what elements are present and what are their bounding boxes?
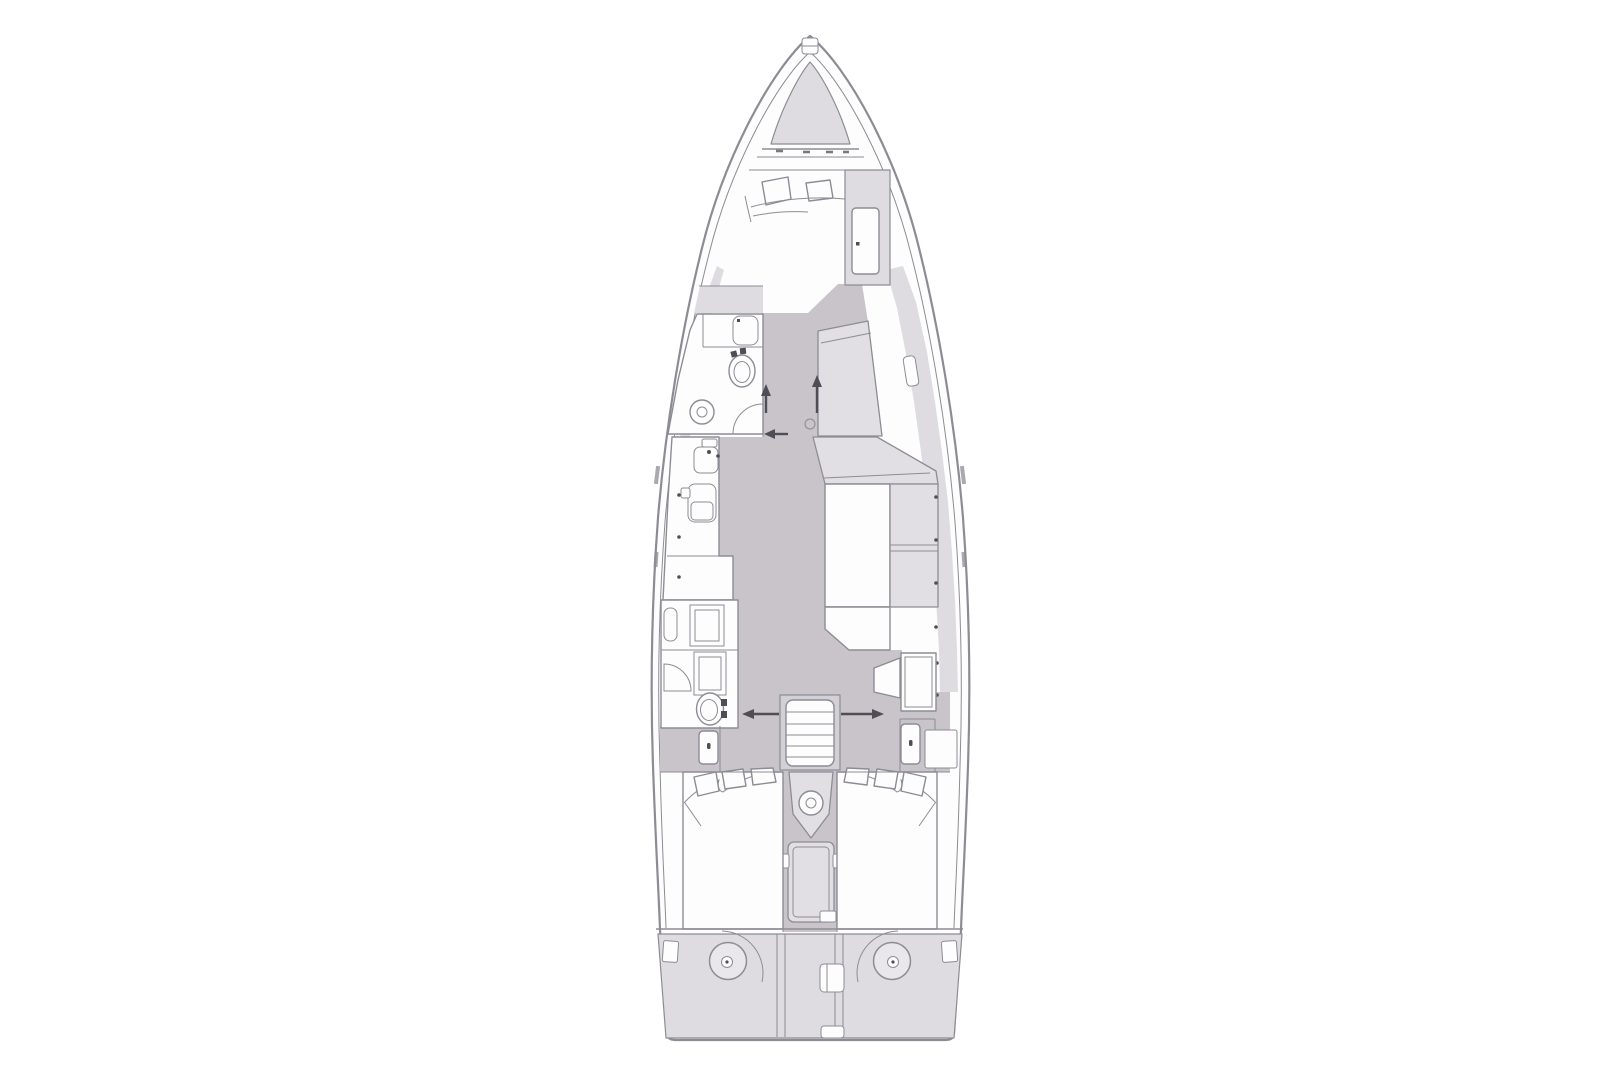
forward-head [668,314,763,434]
starboard-entry-step [925,730,957,768]
toilet-hinge [721,699,727,706]
coachroof-window [852,208,879,274]
starboard-hatch-latch [909,740,913,746]
yacht-floorplan-canvas: Sailing yacht interior layout plan — ove… [0,0,1620,1080]
galley-sink-faucet-dot [707,450,711,454]
transom-corner-notch-port [662,941,678,963]
port-aft-pillow [751,768,776,785]
sofa-seat [825,484,890,607]
forward-bulkhead-strip [694,286,763,313]
engine-access-circle [799,791,823,815]
companionway [780,695,840,770]
galley-sink-tab [702,439,717,447]
starboard-aft-pillow [901,772,926,796]
toilet-hinge [721,711,727,718]
starboard-aft-cabin [837,768,937,929]
stairs-ladder [786,700,834,766]
swim-ladder-recess [821,1026,844,1038]
starboard-aft-pillow [844,768,869,785]
mid-head-cabinet-inner [699,657,721,690]
mid-head [661,600,738,728]
transom-center-fitting [820,964,844,992]
toilet-hinge [740,348,747,355]
transom-corner-notch-stbd [941,940,957,962]
steering-hub-dot-port [725,960,728,963]
port-toe-rail-fitting [654,466,660,484]
vanity-faucet-dot [737,319,740,322]
port-aft-pillow [694,772,719,796]
nav-cabinet [901,653,936,711]
engine-box [788,842,834,922]
floor-plan-svg: Sailing yacht interior layout plan — ove… [0,0,1620,1080]
transom-platform [658,934,962,1038]
port-aft-cabin [683,768,783,929]
port-hatch-latch [707,743,711,749]
engine-box-fitting [820,911,836,922]
galley-sink [694,447,718,473]
galley-stove-handle [681,488,690,498]
transom [656,929,963,1038]
starboard-toe-rail-fitting [960,466,966,484]
forward-head-sink [690,400,714,424]
steering-hub-dot-stbd [891,960,894,963]
shower-pan-inner [695,610,719,641]
window-latch-dot [856,242,860,246]
forward-head-vanity [733,316,758,345]
